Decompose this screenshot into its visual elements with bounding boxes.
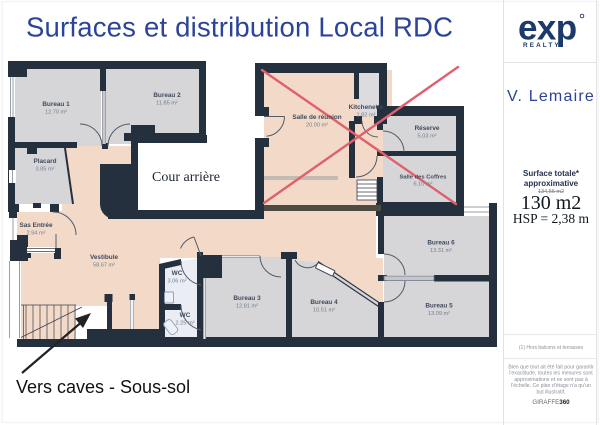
svg-text:Salle de réunion: Salle de réunion xyxy=(292,114,341,121)
svg-text:3.85 m²: 3.85 m² xyxy=(36,167,55,173)
svg-text:Bureau 2: Bureau 2 xyxy=(153,92,181,99)
svg-text:but illustratif.: but illustratif. xyxy=(536,389,565,395)
svg-text:58.67 m²: 58.67 m² xyxy=(93,263,115,269)
svg-text:1.82 m²: 1.82 m² xyxy=(357,113,376,119)
svg-text:Réserve: Réserve xyxy=(415,125,440,132)
svg-text:Surface totale*: Surface totale* xyxy=(523,169,580,178)
svg-text:(1) Hors balcons et terrasses: (1) Hors balcons et terrasses xyxy=(519,345,584,351)
svg-text:12.81 m²: 12.81 m² xyxy=(236,304,258,310)
svg-text:11.85 m²: 11.85 m² xyxy=(156,101,178,107)
svg-text:10.51 m²: 10.51 m² xyxy=(313,308,335,314)
svg-text:5.03 m²: 5.03 m² xyxy=(418,134,437,140)
svg-text:WC: WC xyxy=(172,270,183,277)
svg-text:Sas Entrée: Sas Entrée xyxy=(19,222,52,229)
svg-text:HSP = 2,38 m: HSP = 2,38 m xyxy=(513,211,590,226)
svg-text:Vers caves - Sous-sol: Vers caves - Sous-sol xyxy=(16,377,190,397)
svg-text:12.70 m²: 12.70 m² xyxy=(45,110,67,116)
svg-text:3.06 m²: 3.06 m² xyxy=(168,279,187,285)
svg-text:Bureau 1: Bureau 1 xyxy=(42,101,70,108)
svg-text:13.09 m²: 13.09 m² xyxy=(428,311,450,317)
svg-text:Cour arrière: Cour arrière xyxy=(152,170,220,185)
svg-text:6.10 m²: 6.10 m² xyxy=(414,182,433,188)
svg-text:l'exactitude, toutes les mesur: l'exactitude, toutes les mesures sont xyxy=(509,371,593,377)
svg-text:approximations et ne sont pas: approximations et ne sont pas à xyxy=(514,377,588,383)
svg-text:l'échelle. Ce plan d'étage n'a: l'échelle. Ce plan d'étage n'a qu'un xyxy=(511,383,591,389)
svg-text:Vestibule: Vestibule xyxy=(90,254,119,261)
svg-text:GIRAFFE360: GIRAFFE360 xyxy=(532,399,570,406)
svg-text:Surfaces et distribution Local: Surfaces et distribution Local RDC xyxy=(26,12,453,43)
svg-text:Bureau 6: Bureau 6 xyxy=(427,240,455,247)
svg-text:Kitchenette: Kitchenette xyxy=(349,104,384,111)
svg-text:REALTY: REALTY xyxy=(523,42,561,49)
svg-text:Bureau 3: Bureau 3 xyxy=(233,295,261,302)
svg-text:WC: WC xyxy=(180,312,191,319)
svg-text:V. Lemaire: V. Lemaire xyxy=(507,88,595,105)
svg-text:13.31 m²: 13.31 m² xyxy=(430,248,452,254)
svg-text:Salle des Coffres: Salle des Coffres xyxy=(399,175,446,181)
svg-text:2.25 m²: 2.25 m² xyxy=(176,321,195,327)
svg-text:Bureau 5: Bureau 5 xyxy=(425,303,453,310)
svg-text:Placard: Placard xyxy=(33,158,56,165)
svg-text:Bureau 4: Bureau 4 xyxy=(310,299,338,306)
svg-text:20.00 m²: 20.00 m² xyxy=(306,123,328,129)
svg-text:approximative: approximative xyxy=(524,179,579,188)
svg-text:Bien que tout ait été fait pou: Bien que tout ait été fait pour garantir xyxy=(508,365,594,371)
svg-text:2.94 m²: 2.94 m² xyxy=(27,231,46,237)
